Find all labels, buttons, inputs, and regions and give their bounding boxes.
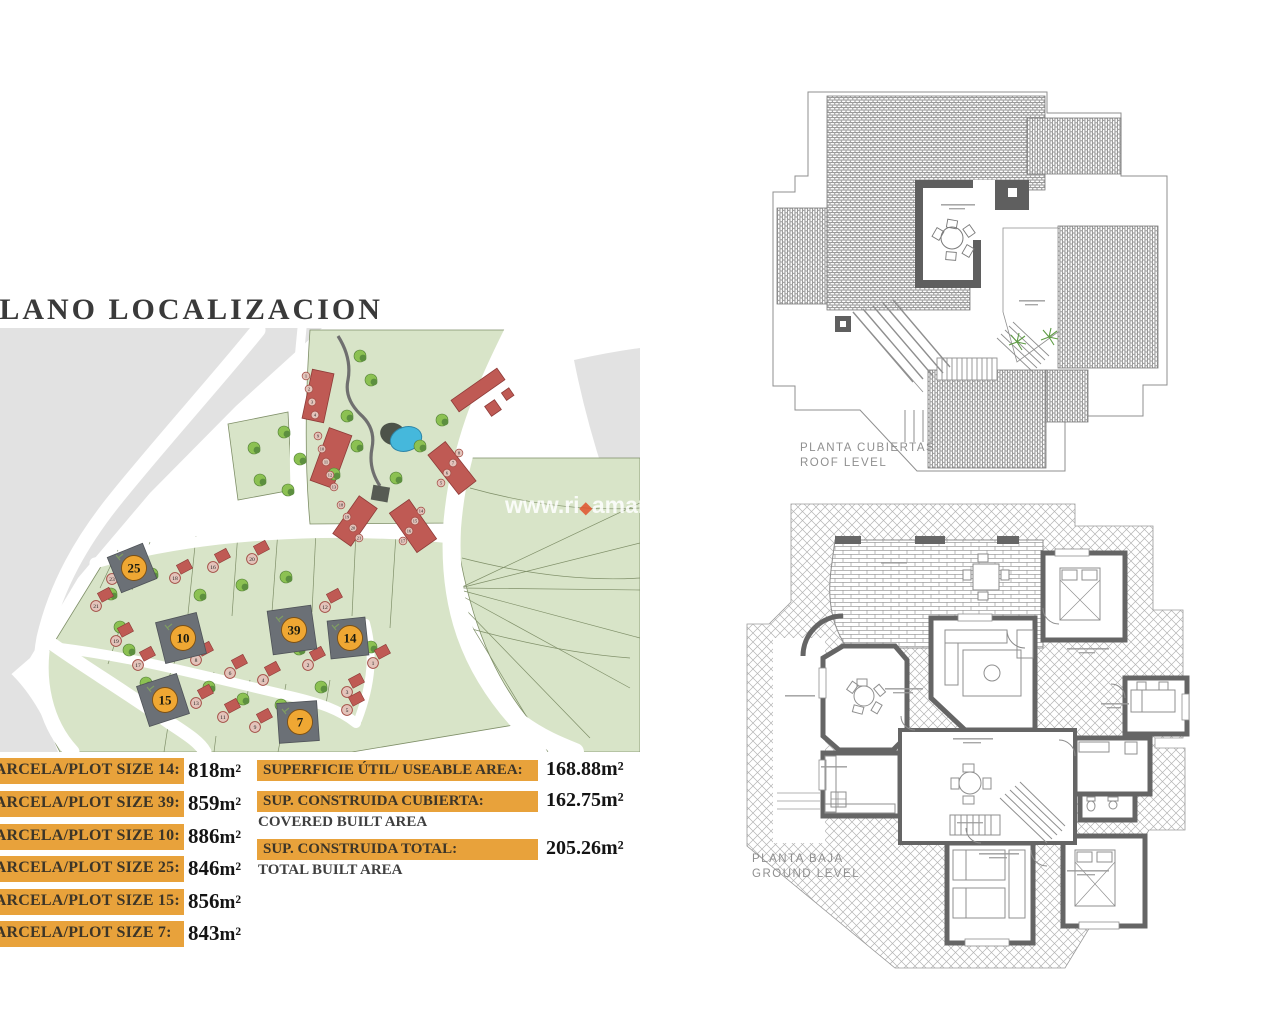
roof-plan-caption: PLANTA CUBIERTAS ROOF LEVEL xyxy=(800,441,935,471)
svg-text:2: 2 xyxy=(307,663,310,669)
svg-text:18: 18 xyxy=(172,576,178,582)
svg-text:25: 25 xyxy=(128,561,142,576)
page-title: PLANO LOCALIZACION xyxy=(0,293,383,327)
area-label: SUP. CONSTRUIDA TOTAL: xyxy=(263,841,457,858)
svg-text:11: 11 xyxy=(220,715,226,721)
area-value: 162.75m² xyxy=(546,789,624,812)
plot-size-bar: PARCELA/PLOT SIZE 15: xyxy=(0,889,184,915)
svg-text:39: 39 xyxy=(288,623,302,638)
ground-plan-caption-line1: PLANTA BAJA xyxy=(752,852,860,867)
watermark: www.ri◆amar xyxy=(505,492,647,519)
svg-text:3: 3 xyxy=(346,690,349,696)
road xyxy=(294,328,302,504)
watermark-suffix: amar xyxy=(592,492,647,518)
plot-size-row: PARCELA/PLOT SIZE 7: 843m² xyxy=(0,921,246,948)
svg-text:1: 1 xyxy=(305,374,307,379)
area-bar: SUP. CONSTRUIDA CUBIERTA: xyxy=(257,791,538,812)
svg-text:5: 5 xyxy=(346,708,349,714)
plot-size-label: PARCELA/PLOT SIZE 14: xyxy=(0,761,180,779)
area-bar: SUP. CONSTRUIDA TOTAL: xyxy=(257,839,538,860)
svg-text:21: 21 xyxy=(357,536,361,541)
svg-text:4: 4 xyxy=(262,678,265,684)
plot-size-row: PARCELA/PLOT SIZE 39: 859m² xyxy=(0,791,246,818)
bedroom-1 xyxy=(1043,553,1125,640)
plot-size-value: 886m² xyxy=(188,824,241,849)
area-label: SUPERFICIE ÚTIL/ USEABLE AREA: xyxy=(263,762,523,779)
svg-text:1: 1 xyxy=(372,661,375,667)
hall xyxy=(900,730,1075,843)
roof-plan-caption-line1: PLANTA CUBIERTAS xyxy=(800,441,935,456)
plot-size-label: PARCELA/PLOT SIZE 25: xyxy=(0,859,180,877)
area-sublabel: COVERED BUILT AREA xyxy=(258,814,427,831)
plot-size-value: 859m² xyxy=(188,791,241,816)
svg-text:10: 10 xyxy=(177,631,190,646)
roof-area-bottom-right xyxy=(1046,370,1088,422)
svg-text:8: 8 xyxy=(195,658,198,664)
svg-text:20: 20 xyxy=(249,557,255,563)
dressing-room xyxy=(1075,738,1150,794)
plot-size-row: PARCELA/PLOT SIZE 25: 846m² xyxy=(0,856,246,883)
location-site-plan: 2321191718162012864213119531123491011121… xyxy=(0,328,640,752)
area-value: 205.26m² xyxy=(546,837,624,860)
svg-text:23: 23 xyxy=(109,577,115,583)
plot-size-value: 843m² xyxy=(188,921,241,946)
svg-text:11: 11 xyxy=(324,460,328,465)
dining-bay xyxy=(823,646,907,750)
ground-plan-caption-line2: GROUND LEVEL xyxy=(752,867,860,882)
plot-size-label: PARCELA/PLOT SIZE 15: xyxy=(0,892,180,910)
watermark-prefix: www.ri xyxy=(505,492,580,518)
plot-size-label: PARCELA/PLOT SIZE 10: xyxy=(0,827,180,845)
svg-text:14: 14 xyxy=(344,631,358,646)
svg-text:12: 12 xyxy=(328,473,332,478)
svg-text:7: 7 xyxy=(297,715,304,730)
plot-size-bar: PARCELA/PLOT SIZE 39: xyxy=(0,791,184,817)
plot-size-bar: PARCELA/PLOT SIZE 10: xyxy=(0,824,184,850)
ground-plan-caption: PLANTA BAJA GROUND LEVEL xyxy=(752,852,860,882)
svg-text:6: 6 xyxy=(229,671,232,677)
plot-size-value: 856m² xyxy=(188,889,241,914)
plot-size-bar: PARCELA/PLOT SIZE 25: xyxy=(0,856,184,882)
svg-text:21: 21 xyxy=(93,604,99,610)
roof-area-left-wing xyxy=(777,208,827,304)
watermark-logo-icon: ◆ xyxy=(580,500,592,517)
study-room xyxy=(1125,678,1187,734)
roof-area-bottom xyxy=(928,370,1046,468)
svg-text:17: 17 xyxy=(135,663,141,669)
brochure-page: PLANO LOCALIZACION 232119171816201286421… xyxy=(0,0,1280,1024)
svg-text:9: 9 xyxy=(254,725,257,731)
plot-size-row: PARCELA/PLOT SIZE 15: 856m² xyxy=(0,889,246,916)
svg-text:19: 19 xyxy=(113,639,119,645)
roof-area-top-right xyxy=(1027,118,1121,174)
plot-size-value: 846m² xyxy=(188,856,241,881)
plot-size-label: PARCELA/PLOT SIZE 7: xyxy=(0,924,172,942)
plot-size-bar: PARCELA/PLOT SIZE 14: xyxy=(0,758,184,784)
svg-text:13: 13 xyxy=(193,701,199,707)
ground-floor-plan xyxy=(735,498,1215,978)
plot-size-value: 818m² xyxy=(188,758,241,783)
shed xyxy=(371,485,390,503)
svg-text:12: 12 xyxy=(322,605,328,611)
area-bar: SUPERFICIE ÚTIL/ USEABLE AREA: xyxy=(257,760,538,781)
svg-text:15: 15 xyxy=(159,693,173,708)
plot-size-bar: PARCELA/PLOT SIZE 7: xyxy=(0,921,184,947)
plot-size-row: PARCELA/PLOT SIZE 10: 886m² xyxy=(0,824,246,851)
roof-plan-caption-line2: ROOF LEVEL xyxy=(800,456,935,471)
plot-size-label: PARCELA/PLOT SIZE 39: xyxy=(0,794,180,812)
area-value: 168.88m² xyxy=(546,758,624,781)
plot-size-row: PARCELA/PLOT SIZE 14: 818m² xyxy=(0,758,246,785)
svg-text:16: 16 xyxy=(210,565,216,571)
solarium-room xyxy=(915,180,1003,288)
area-sublabel: TOTAL BUILT AREA xyxy=(258,862,403,879)
living-room xyxy=(931,618,1035,730)
roof-area-right xyxy=(1058,226,1158,368)
area-label: SUP. CONSTRUIDA CUBIERTA: xyxy=(263,793,484,810)
roof-plan xyxy=(765,80,1205,485)
svg-text:2: 2 xyxy=(308,387,310,392)
